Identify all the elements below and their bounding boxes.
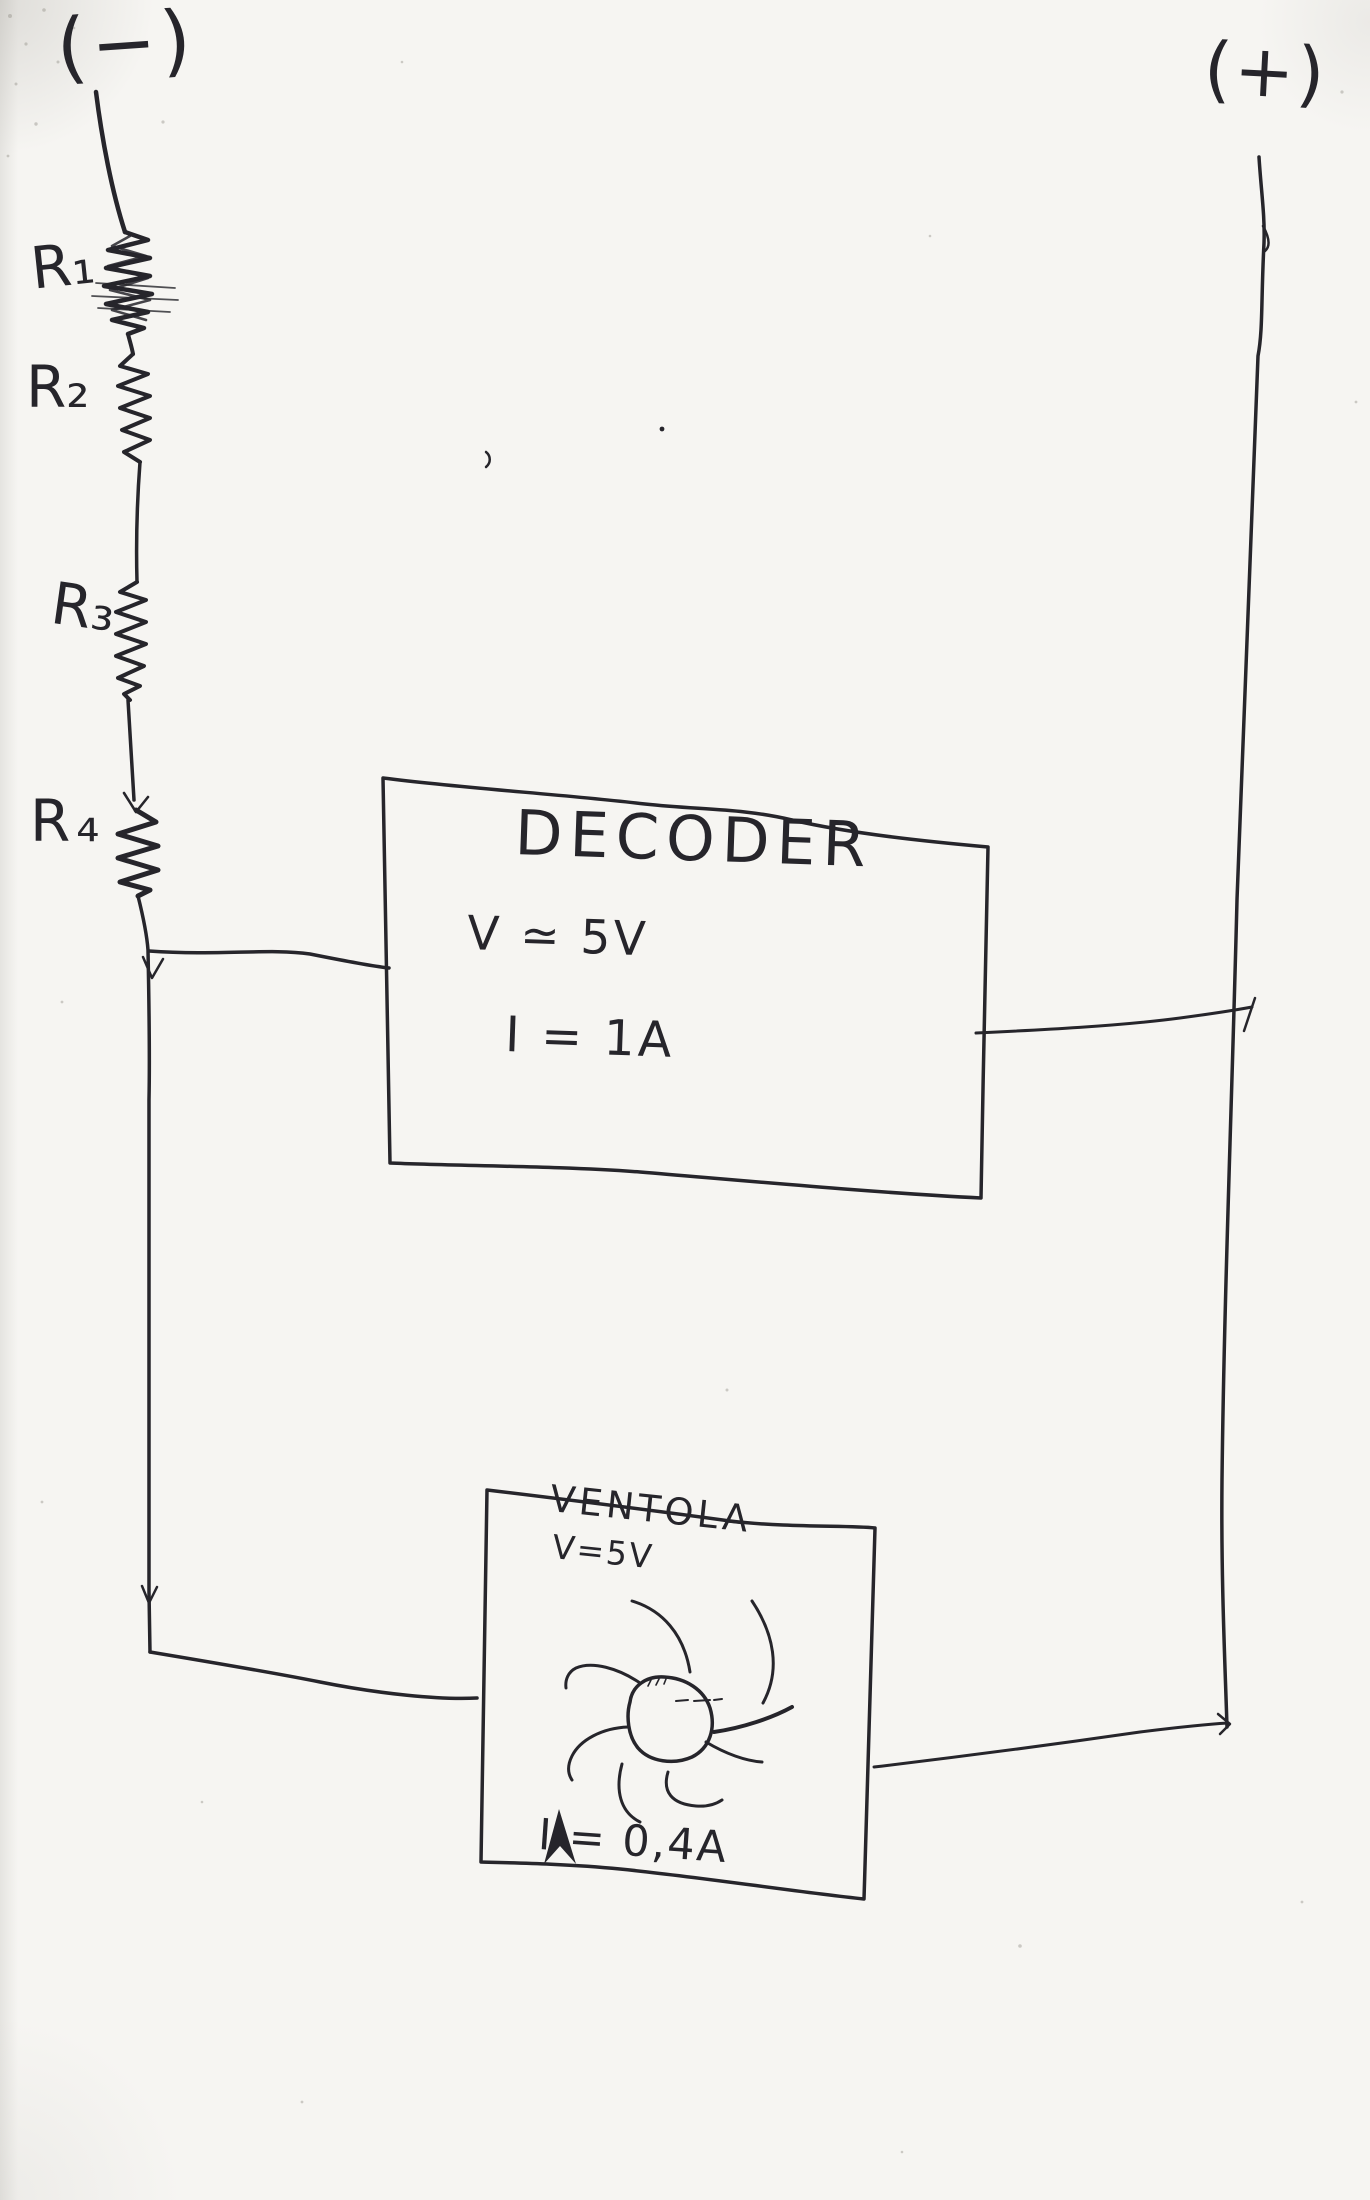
decoder-title: DECODER — [514, 802, 874, 876]
resistor-r3-coil — [116, 582, 146, 700]
stray-dot — [660, 427, 665, 432]
fan-blade-bottom-left — [619, 1764, 640, 1822]
resistor-r3-label: R₃ — [48, 574, 119, 640]
left-rail — [92, 92, 178, 1652]
negative-terminal-label: (−) — [54, 0, 197, 87]
fan-blade-bottom-right — [706, 1742, 762, 1762]
stray-marks — [486, 427, 664, 467]
positive-terminal-label: (+) — [1202, 32, 1328, 110]
fan-icon — [566, 1601, 792, 1822]
fan-blade-right — [714, 1707, 792, 1732]
fan-voltage-label: V=5V — [551, 1530, 656, 1573]
stray-tick — [486, 452, 490, 467]
wire-r2-r3 — [137, 462, 140, 582]
wire-neg-terminal-drop — [96, 92, 125, 232]
wire-rail-to-decoder — [149, 951, 389, 968]
wire-fan-right — [874, 1723, 1228, 1767]
fan-blade-left-upper — [566, 1665, 640, 1688]
wire-left-rail-lower — [138, 896, 150, 1652]
fan-current-label: I = 0,4A — [537, 1814, 729, 1870]
fan-hub — [628, 1677, 712, 1761]
decoder-current-label: I = 1A — [504, 1010, 675, 1065]
wire-pos-terminal-rail — [1222, 157, 1264, 1727]
right-rail — [1222, 157, 1269, 1727]
resistor-r4-coil — [118, 810, 158, 896]
resistor-r4-label: R₄ — [30, 792, 106, 850]
resistor-r1-label: R₁ — [28, 233, 97, 297]
wire-rail-to-fan — [150, 1652, 477, 1698]
fan-blade-bottom — [666, 1772, 722, 1806]
fan-blade-right-dashes — [676, 1699, 722, 1701]
resistor-r2-label: R₂ — [26, 358, 90, 416]
wire-decoder-right — [976, 1007, 1252, 1033]
decoder-voltage-label: V ≃ 5V — [466, 910, 649, 963]
fan-blade-upper-right — [752, 1601, 773, 1703]
wire-r3-r4 — [128, 700, 134, 800]
resistor-r2-squiggle — [118, 354, 150, 462]
fan-blade-upper-left — [632, 1601, 690, 1672]
fan-hub-hatch — [648, 1679, 666, 1686]
arrow-barb-junction — [143, 957, 163, 978]
arrow-barb-decoder-wire — [1244, 998, 1255, 1031]
wire-decoder-to-rail — [976, 998, 1255, 1033]
wire-r1-r2 — [128, 334, 133, 354]
wire-fan-to-rail — [874, 1714, 1230, 1767]
hand-drawn-circuit-sheet: (−) (+) R₁ R₂ R₃ R₄ DECODER V ≃ 5V I = 1… — [0, 0, 1370, 2200]
